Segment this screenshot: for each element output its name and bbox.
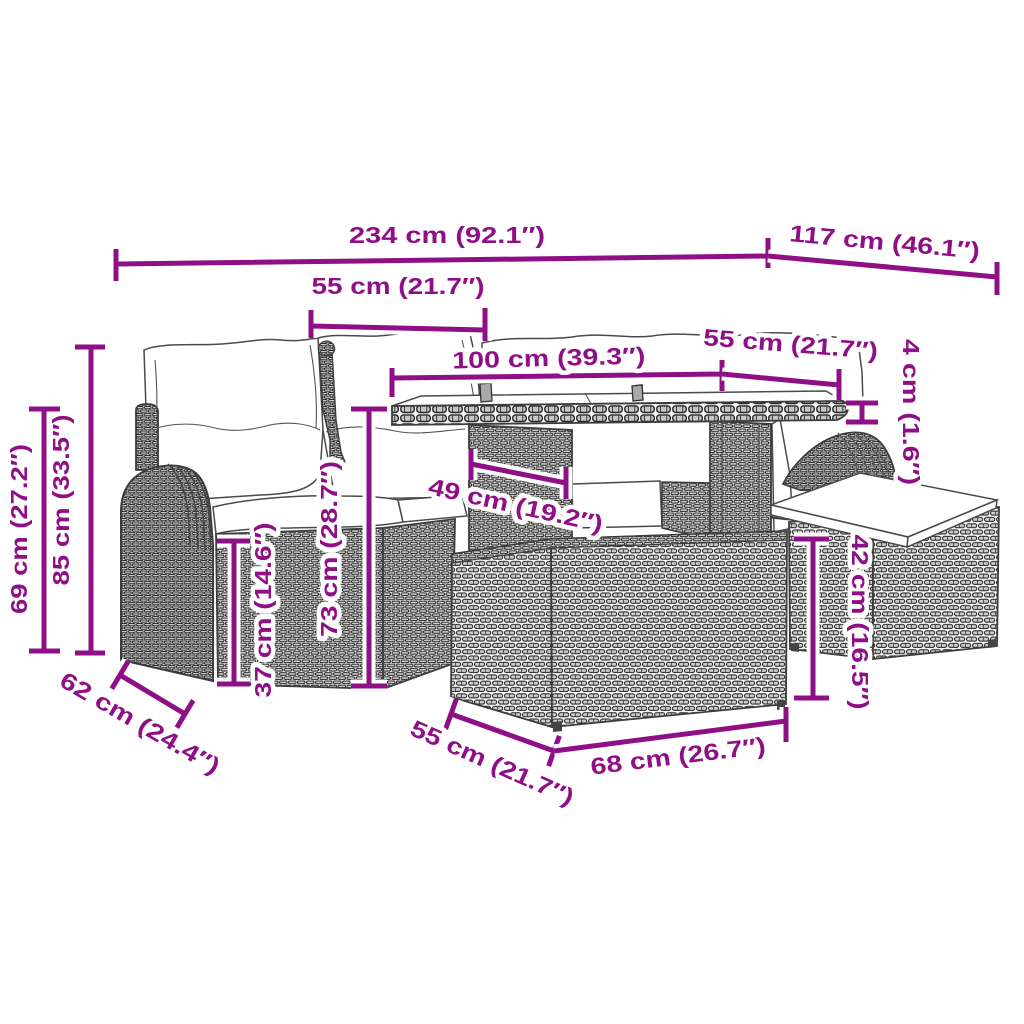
svg-text:37 cm (14.6″): 37 cm (14.6″) <box>250 523 276 698</box>
svg-text:100 cm (39.3″): 100 cm (39.3″) <box>452 342 646 373</box>
svg-text:55 cm (21.7″): 55 cm (21.7″) <box>312 273 485 299</box>
svg-text:69 cm (27.2″): 69 cm (27.2″) <box>6 444 32 614</box>
svg-text:73 cm (28.7″): 73 cm (28.7″) <box>316 461 342 637</box>
svg-text:4 cm (1.6″): 4 cm (1.6″) <box>898 339 924 485</box>
svg-text:42 cm (16.5″): 42 cm (16.5″) <box>847 535 873 710</box>
svg-text:85 cm (33.5″): 85 cm (33.5″) <box>48 415 74 586</box>
svg-text:234 cm (92.1″): 234 cm (92.1″) <box>349 222 545 248</box>
